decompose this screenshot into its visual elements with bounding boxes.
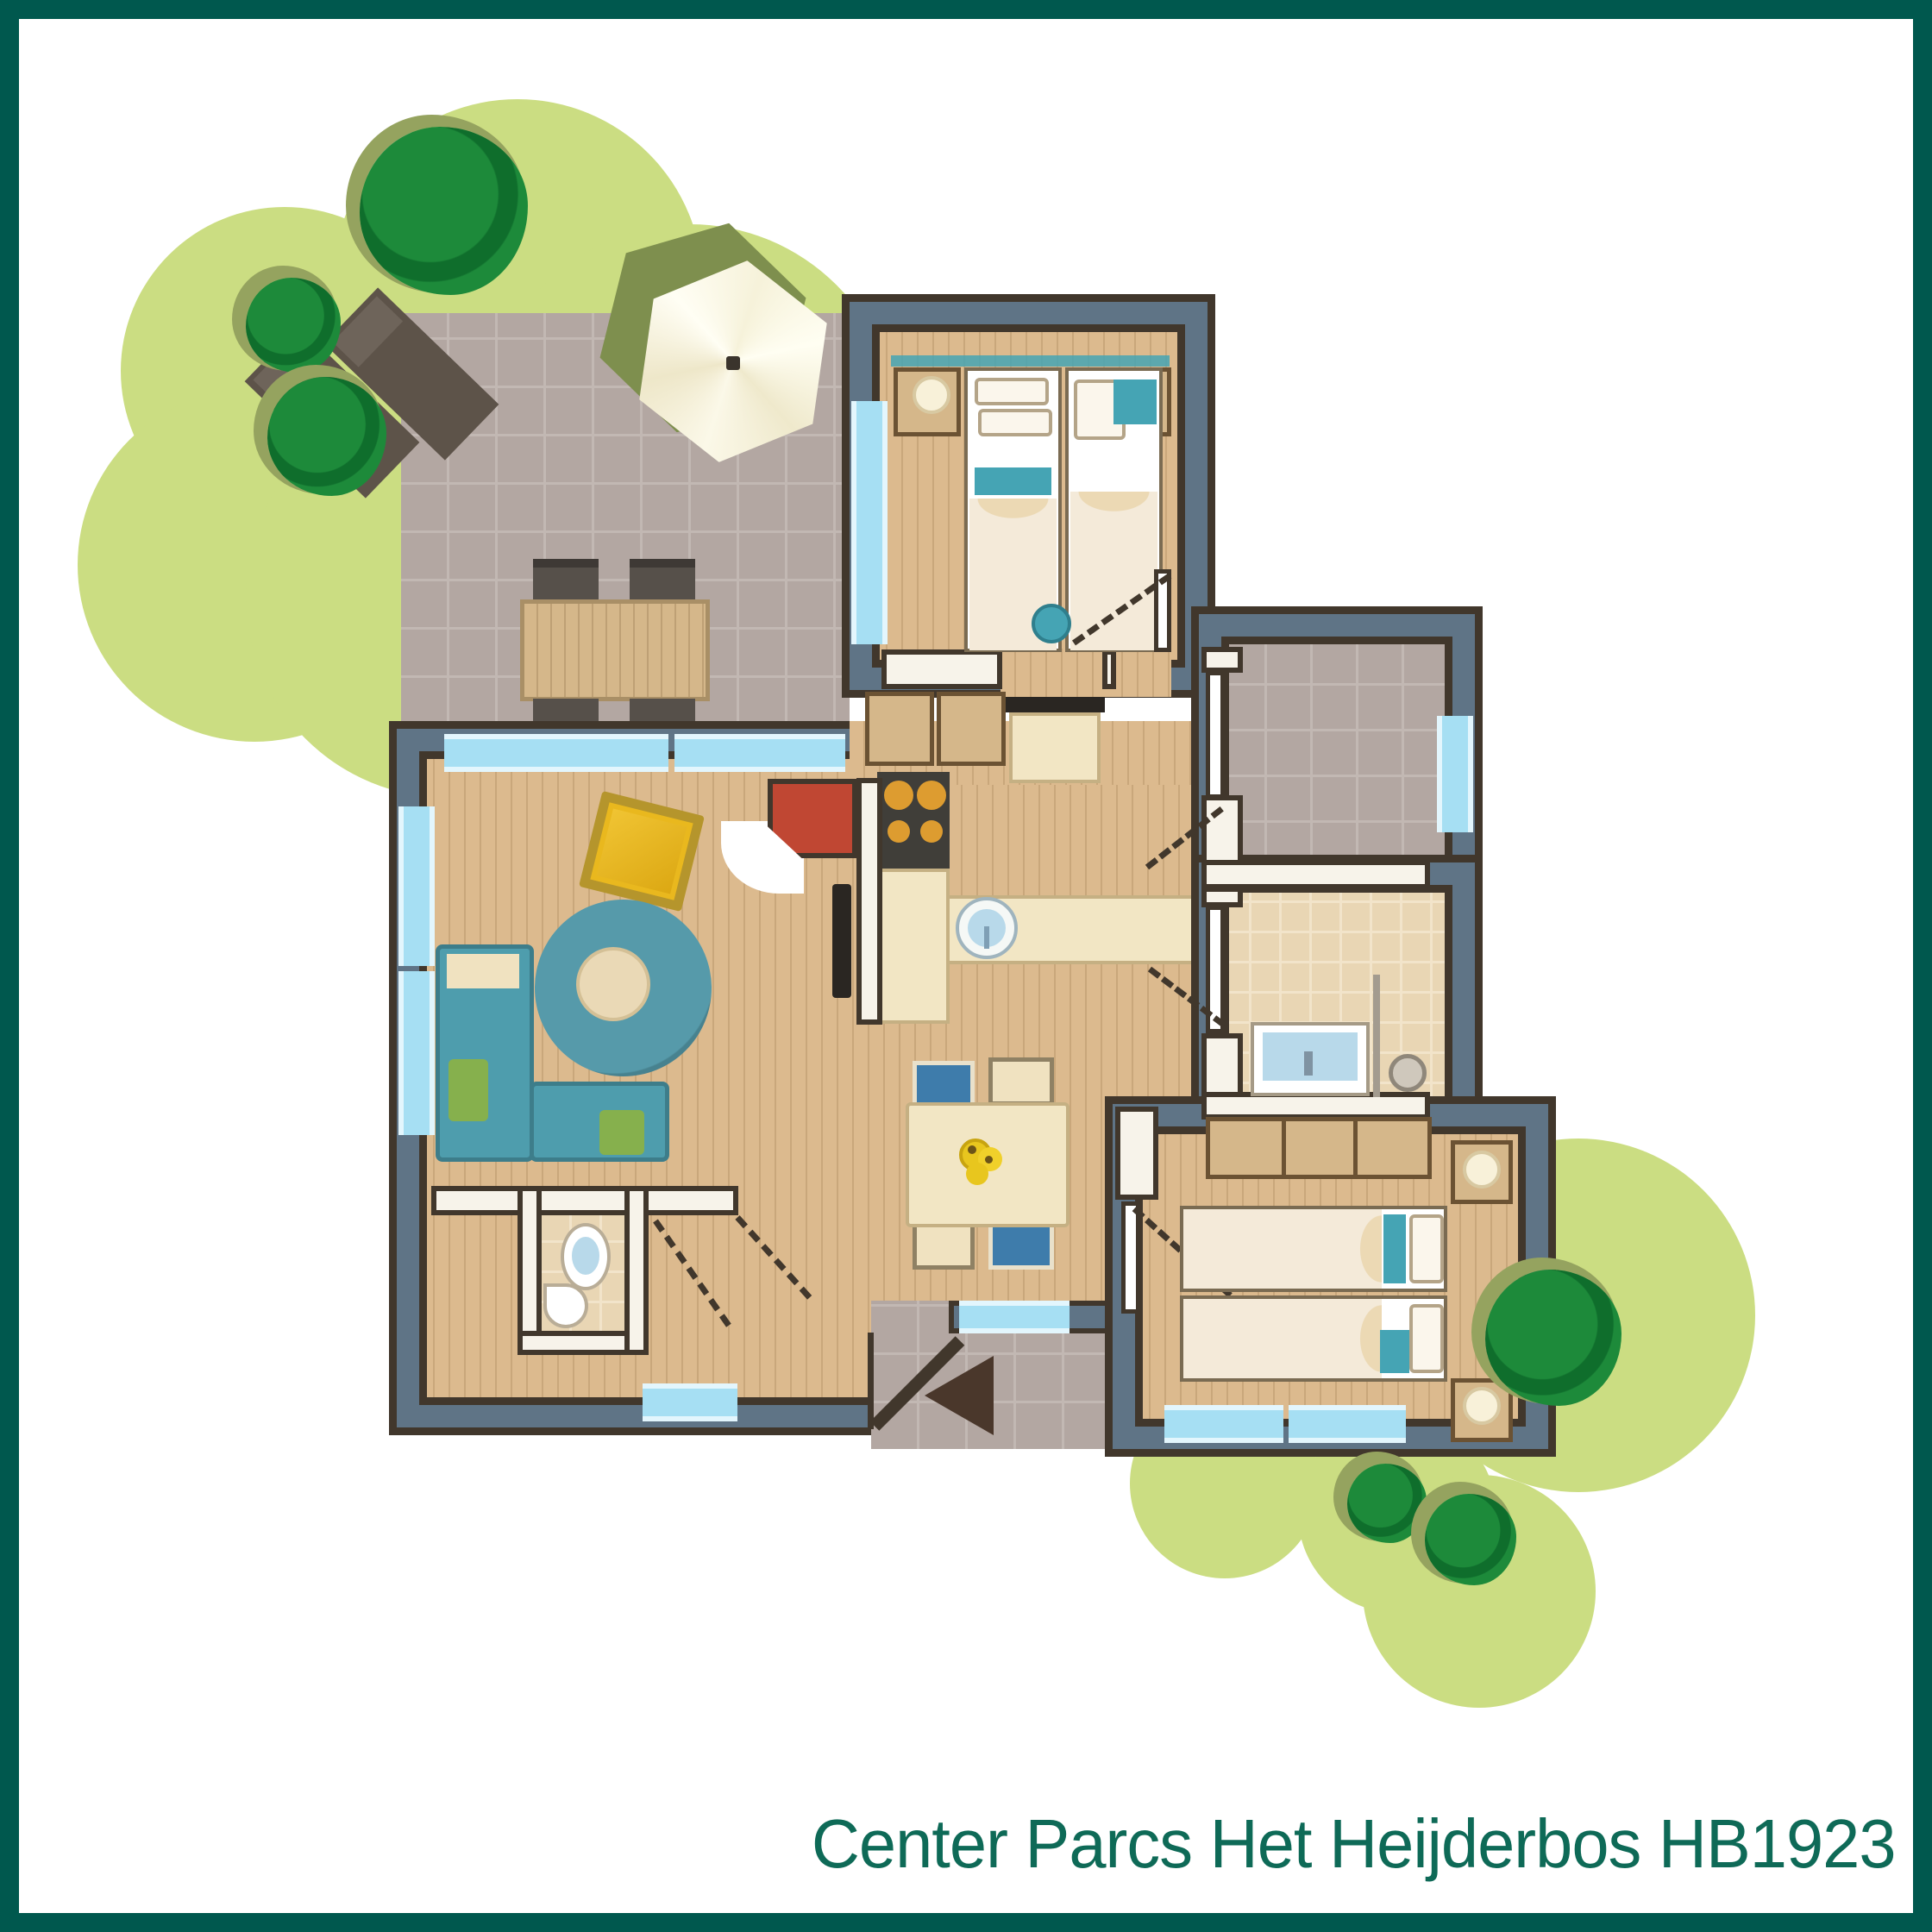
curtain-rail — [891, 355, 1170, 367]
lamp — [913, 376, 950, 414]
partition-hall-bath — [1201, 860, 1430, 889]
hob — [877, 772, 950, 869]
kitchen-cabinet — [865, 692, 934, 766]
partition-hall-bedroom2 — [1115, 1107, 1158, 1200]
wardrobe — [1206, 1117, 1432, 1179]
partition-bedroom-kitchen — [881, 649, 1002, 689]
door-leaf — [1206, 671, 1225, 799]
window — [398, 806, 435, 966]
wc-wall — [517, 1186, 542, 1355]
window — [1437, 716, 1473, 832]
floor-patch — [1107, 649, 1171, 697]
window — [1289, 1405, 1406, 1443]
partition-hall-bath — [1201, 1033, 1243, 1099]
tv — [832, 884, 851, 998]
partition-hall-storage — [1201, 647, 1243, 673]
single-bed — [1180, 1295, 1447, 1382]
window — [674, 734, 845, 772]
outdoor-table — [520, 599, 710, 701]
door-jamb — [1102, 649, 1116, 689]
dining-chair-blue — [913, 1061, 975, 1107]
shower-glass — [1373, 975, 1380, 1097]
tree-icon — [246, 278, 341, 373]
corner-basin — [543, 1283, 588, 1328]
sofa-chaise — [530, 1082, 669, 1162]
sofa — [436, 944, 534, 1162]
window — [444, 734, 668, 772]
parasol — [595, 220, 845, 470]
entrance-arrow — [925, 1356, 994, 1435]
dressing-table — [1009, 712, 1101, 783]
dressing-table-top — [1005, 697, 1105, 712]
window — [959, 1301, 1069, 1333]
lamp — [1463, 1387, 1501, 1425]
coffee-table — [576, 947, 650, 1021]
partition-living-hall — [431, 1186, 738, 1215]
tree-icon — [1485, 1270, 1621, 1406]
window — [643, 1383, 737, 1421]
dining-chair-blue — [988, 1223, 1054, 1270]
flower-vase — [956, 1135, 1006, 1185]
floor-plan-canvas: Center Parcs Het Heijderbos HB1923 — [0, 0, 1932, 1932]
lamp — [1463, 1151, 1501, 1189]
single-bed — [1065, 367, 1163, 652]
tree-icon — [1425, 1494, 1516, 1585]
partition-living-kitchen — [856, 778, 882, 1025]
stool — [1032, 604, 1071, 643]
door-leaf — [1121, 1201, 1140, 1314]
dining-chair — [988, 1057, 1054, 1106]
shower-head — [1389, 1054, 1427, 1092]
wc-wall — [624, 1186, 649, 1355]
toilet — [561, 1223, 611, 1290]
porch-edge — [868, 1333, 874, 1429]
floor-patch — [1000, 649, 1114, 697]
kitchen-cabinet — [937, 692, 1006, 766]
partition-hall-bath — [1201, 887, 1243, 907]
kitchen-sink — [956, 897, 1018, 959]
window — [851, 401, 888, 644]
tree-icon — [360, 127, 528, 295]
dining-chair — [913, 1223, 975, 1270]
tree-icon — [267, 377, 386, 496]
plan-caption: Center Parcs Het Heijderbos HB1923 — [812, 1804, 1896, 1884]
window — [398, 971, 435, 1135]
kitchen-counter — [877, 869, 950, 1024]
vanity-sink — [1251, 1022, 1370, 1096]
tree-icon — [1347, 1464, 1427, 1543]
single-bed — [1180, 1206, 1447, 1292]
window — [1164, 1405, 1283, 1443]
